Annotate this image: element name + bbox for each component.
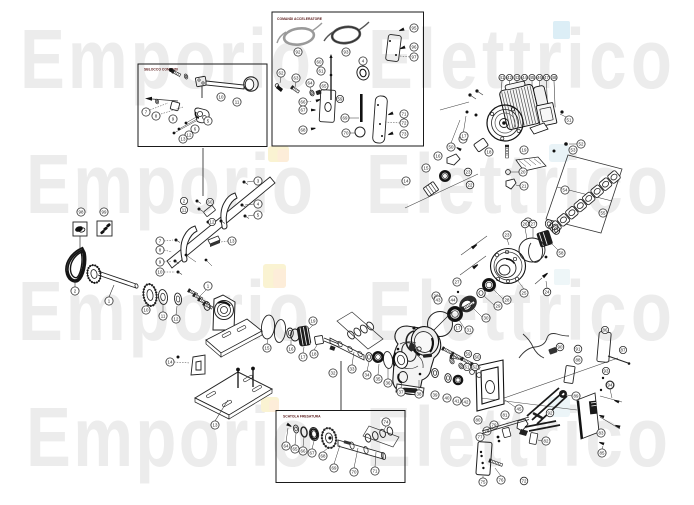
svg-text:46: 46 [537,75,542,80]
svg-text:11: 11 [161,314,166,319]
svg-text:88: 88 [576,358,581,363]
svg-text:74: 74 [384,420,389,425]
svg-text:80: 80 [476,418,481,423]
svg-text:30: 30 [484,316,489,321]
svg-text:53: 53 [571,148,576,153]
svg-text:Elettrico: Elettrico [366,138,672,232]
svg-text:61: 61 [319,69,324,74]
svg-text:23: 23 [505,233,510,238]
svg-text:65: 65 [322,84,327,89]
svg-text:40: 40 [445,396,450,401]
svg-text:47: 47 [544,75,549,80]
svg-text:41: 41 [455,399,460,404]
svg-text:83: 83 [599,431,604,436]
svg-text:98: 98 [79,210,84,215]
svg-text:68: 68 [321,454,326,459]
svg-text:62: 62 [279,71,284,76]
svg-text:14: 14 [404,179,409,184]
svg-text:20: 20 [521,170,526,175]
svg-text:64: 64 [284,444,289,449]
svg-text:70: 70 [344,131,349,136]
svg-text:14: 14 [168,360,173,365]
svg-text:60: 60 [317,60,322,65]
svg-text:43: 43 [515,75,520,80]
svg-text:10: 10 [219,95,224,100]
svg-text:67: 67 [301,108,306,113]
svg-text:76: 76 [499,478,504,483]
svg-text:23: 23 [466,170,471,175]
svg-text:63: 63 [294,76,299,81]
svg-text:44: 44 [451,298,456,303]
svg-text:69: 69 [332,466,337,471]
svg-text:42: 42 [464,400,469,405]
svg-text:60: 60 [475,355,480,360]
svg-text:50: 50 [449,145,454,150]
svg-text:85: 85 [600,451,605,456]
svg-text:71: 71 [373,469,378,474]
svg-text:19: 19 [311,319,316,324]
svg-text:18: 18 [487,150,492,155]
svg-text:12: 12 [187,133,192,138]
svg-text:72: 72 [402,121,407,126]
svg-text:60: 60 [208,200,213,205]
svg-text:39: 39 [433,393,438,398]
svg-text:15: 15 [424,166,429,171]
svg-text:75: 75 [481,480,486,485]
svg-text:95: 95 [412,26,417,31]
svg-text:28: 28 [505,298,510,303]
svg-text:73: 73 [402,132,407,137]
svg-text:35: 35 [376,377,381,382]
svg-text:42: 42 [507,75,512,80]
svg-text:68: 68 [301,128,306,133]
svg-text:10: 10 [144,308,149,313]
svg-text:93: 93 [344,50,349,55]
svg-text:19: 19 [522,148,527,153]
svg-text:67: 67 [310,451,315,456]
svg-text:36: 36 [386,381,391,386]
svg-text:13: 13 [230,239,235,244]
svg-text:51: 51 [567,118,572,123]
svg-text:86: 86 [603,328,608,333]
svg-text:16: 16 [436,154,441,159]
svg-text:52: 52 [579,142,584,147]
svg-text:41: 41 [500,75,505,80]
svg-text:44: 44 [522,75,527,80]
svg-text:70: 70 [352,470,357,475]
svg-text:89: 89 [574,394,579,399]
svg-text:16: 16 [289,347,294,352]
svg-text:13: 13 [181,137,186,142]
svg-text:91: 91 [576,347,581,352]
svg-text:18: 18 [312,352,317,357]
svg-text:27: 27 [455,280,460,285]
svg-text:92: 92 [296,50,301,55]
svg-text:58: 58 [559,251,564,256]
svg-text:54: 54 [563,188,568,193]
svg-text:27: 27 [531,222,536,227]
svg-text:38: 38 [417,392,422,397]
svg-text:61: 61 [465,365,470,370]
svg-text:24: 24 [545,290,550,295]
svg-text:77: 77 [478,435,483,440]
svg-text:26: 26 [523,222,528,227]
svg-text:62: 62 [473,365,478,370]
svg-text:SCATOLA FRESATURA: SCATOLA FRESATURA [283,415,321,419]
svg-text:93: 93 [604,369,609,374]
svg-text:82: 82 [544,439,549,444]
svg-text:COMANDI ACCELERATORE: COMANDI ACCELERATORE [277,17,323,21]
svg-text:15: 15 [265,346,270,351]
svg-text:17: 17 [456,326,461,331]
svg-text:21: 21 [522,184,527,189]
svg-text:92: 92 [548,411,553,416]
svg-text:12: 12 [174,317,179,322]
svg-text:59: 59 [338,97,343,102]
svg-text:72: 72 [522,479,527,484]
svg-text:97: 97 [412,55,417,60]
svg-text:55: 55 [601,211,606,216]
svg-text:37: 37 [399,390,404,395]
svg-text:22: 22 [468,183,473,188]
svg-text:43: 43 [436,298,441,303]
svg-text:87: 87 [621,348,626,353]
svg-text:11: 11 [182,208,187,213]
svg-text:65: 65 [293,447,298,452]
svg-text:Emporio: Emporio [20,13,314,107]
svg-text:48: 48 [552,75,557,80]
svg-text:45: 45 [517,407,522,412]
svg-text:69: 69 [343,116,348,121]
svg-text:71: 71 [402,112,407,117]
svg-text:45: 45 [530,75,535,80]
svg-text:59: 59 [466,352,471,357]
svg-text:10: 10 [158,270,163,275]
svg-text:33: 33 [350,367,355,372]
svg-text:94: 94 [608,383,613,388]
svg-text:17: 17 [301,355,306,360]
svg-text:11: 11 [235,100,240,105]
svg-text:25: 25 [522,291,527,296]
svg-text:81: 81 [503,413,508,418]
svg-text:34: 34 [365,373,370,378]
svg-text:13: 13 [213,423,218,428]
svg-text:99: 99 [102,210,107,215]
svg-text:32: 32 [331,371,336,376]
svg-text:66: 66 [301,100,306,105]
svg-text:31: 31 [467,328,472,333]
svg-text:29: 29 [496,304,501,309]
svg-text:90: 90 [558,345,563,350]
svg-text:12: 12 [210,220,215,225]
svg-text:17: 17 [462,134,467,139]
svg-text:96: 96 [412,45,417,50]
svg-text:66: 66 [301,449,306,454]
svg-text:64: 64 [308,81,313,86]
